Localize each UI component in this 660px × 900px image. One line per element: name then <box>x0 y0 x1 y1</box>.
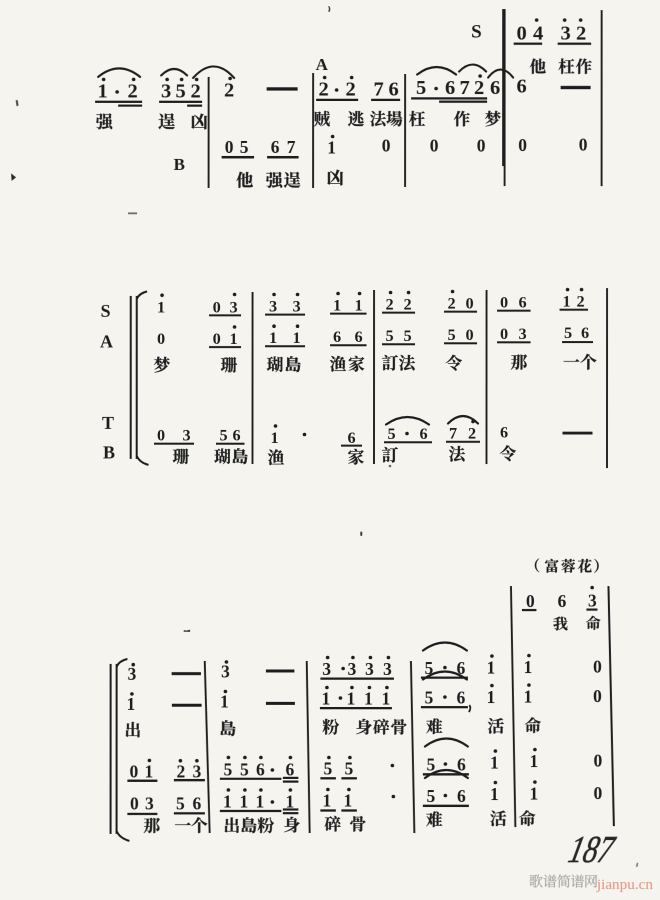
svg-text:1: 1 <box>229 330 237 348</box>
svg-text:0: 0 <box>382 136 391 156</box>
svg-text:3: 3 <box>365 659 374 679</box>
svg-text:A: A <box>100 331 113 351</box>
svg-text:6: 6 <box>519 294 527 312</box>
svg-text:0: 0 <box>594 751 603 771</box>
svg-text:3: 3 <box>128 664 137 684</box>
svg-text:5: 5 <box>564 324 572 342</box>
svg-text:5: 5 <box>385 327 393 345</box>
svg-text:5: 5 <box>175 80 185 102</box>
svg-text:6: 6 <box>445 77 455 99</box>
svg-text:2: 2 <box>448 295 456 313</box>
svg-text:5: 5 <box>176 793 185 813</box>
svg-text:2: 2 <box>318 78 328 100</box>
svg-text:5: 5 <box>425 688 434 708</box>
svg-text:1: 1 <box>490 784 499 804</box>
svg-text:1: 1 <box>382 689 391 709</box>
svg-text:2: 2 <box>468 425 476 443</box>
svg-text:6: 6 <box>581 324 589 342</box>
svg-text:6: 6 <box>192 793 201 813</box>
svg-text:5: 5 <box>240 759 249 779</box>
svg-text:2: 2 <box>345 79 355 101</box>
svg-text:5: 5 <box>240 137 249 157</box>
svg-text:2: 2 <box>177 761 186 781</box>
svg-text:6: 6 <box>490 77 500 99</box>
svg-text:0: 0 <box>213 298 221 316</box>
svg-text:0: 0 <box>500 294 508 312</box>
svg-text:5: 5 <box>416 77 426 99</box>
svg-text:1: 1 <box>347 689 356 709</box>
svg-text:7: 7 <box>449 425 457 443</box>
svg-text:6: 6 <box>271 137 280 157</box>
svg-text:1: 1 <box>269 329 277 347</box>
svg-text:0: 0 <box>593 686 602 706</box>
svg-text:1: 1 <box>322 790 331 810</box>
svg-text:7: 7 <box>459 77 469 99</box>
svg-text:3: 3 <box>182 426 190 444</box>
svg-text:2: 2 <box>127 80 137 102</box>
svg-text:3: 3 <box>588 591 597 611</box>
svg-text:A: A <box>316 55 329 74</box>
svg-text:1: 1 <box>355 297 363 315</box>
svg-text:2: 2 <box>224 79 234 101</box>
svg-text:T: T <box>102 413 114 433</box>
svg-text:2: 2 <box>404 296 412 314</box>
svg-text:3: 3 <box>145 793 154 813</box>
svg-text:1: 1 <box>145 761 154 781</box>
svg-text:3: 3 <box>383 659 392 679</box>
svg-text:B: B <box>103 442 115 462</box>
svg-text:B: B <box>174 155 185 174</box>
svg-text:1: 1 <box>333 297 341 315</box>
svg-text:6: 6 <box>419 425 427 443</box>
svg-text:0: 0 <box>500 325 508 343</box>
svg-text:5: 5 <box>427 786 436 806</box>
svg-text:1: 1 <box>127 694 136 714</box>
svg-text:4: 4 <box>533 23 543 45</box>
svg-text:6: 6 <box>558 591 567 611</box>
svg-text:0: 0 <box>518 135 527 155</box>
svg-text:1: 1 <box>524 687 533 707</box>
svg-text:0: 0 <box>465 326 473 344</box>
svg-text:2: 2 <box>474 77 484 99</box>
svg-text:0: 0 <box>130 761 139 781</box>
svg-text:1: 1 <box>270 429 278 447</box>
svg-text:6: 6 <box>500 424 508 442</box>
svg-text:7: 7 <box>373 79 383 101</box>
svg-text:6: 6 <box>286 759 295 779</box>
svg-text:3: 3 <box>561 23 571 45</box>
svg-text:5: 5 <box>224 759 233 779</box>
svg-text:1: 1 <box>157 298 165 316</box>
svg-text:0: 0 <box>477 135 486 155</box>
svg-text:1: 1 <box>487 687 496 707</box>
svg-text:6: 6 <box>232 426 240 444</box>
svg-text:5: 5 <box>219 426 227 444</box>
svg-text:6: 6 <box>388 79 398 101</box>
svg-text:S: S <box>101 301 111 321</box>
svg-text:5: 5 <box>387 425 395 443</box>
svg-text:1: 1 <box>327 137 336 157</box>
svg-text:1: 1 <box>364 689 373 709</box>
svg-text:3: 3 <box>348 659 357 679</box>
svg-text:1: 1 <box>524 657 533 677</box>
svg-text:1: 1 <box>255 791 264 811</box>
svg-text:S: S <box>471 22 482 43</box>
svg-text:5: 5 <box>447 326 455 344</box>
svg-text:3: 3 <box>322 659 331 679</box>
svg-text:2: 2 <box>577 293 585 311</box>
svg-text:0: 0 <box>593 657 602 677</box>
svg-text:2: 2 <box>576 23 586 45</box>
svg-text:6: 6 <box>347 429 355 447</box>
svg-text:1: 1 <box>530 784 539 804</box>
svg-text:2: 2 <box>190 80 200 102</box>
svg-text:6: 6 <box>457 786 466 806</box>
svg-text:6: 6 <box>333 328 341 346</box>
svg-text:1: 1 <box>292 329 300 347</box>
svg-text:3: 3 <box>193 761 202 781</box>
svg-text:5: 5 <box>403 327 411 345</box>
svg-text:0: 0 <box>594 783 603 803</box>
svg-text:0: 0 <box>526 591 535 611</box>
svg-text:0: 0 <box>130 793 139 813</box>
svg-text:6: 6 <box>457 688 466 708</box>
svg-text:0: 0 <box>213 330 221 348</box>
svg-text:7: 7 <box>287 137 296 157</box>
svg-text:6: 6 <box>516 76 526 98</box>
svg-text:1: 1 <box>239 791 248 811</box>
svg-text:1: 1 <box>530 751 539 771</box>
svg-text:3: 3 <box>269 297 277 315</box>
svg-text:1: 1 <box>322 688 331 708</box>
svg-text:5: 5 <box>345 759 354 779</box>
svg-text:1: 1 <box>97 80 107 102</box>
svg-text:5: 5 <box>324 758 333 778</box>
svg-text:6: 6 <box>354 328 362 346</box>
svg-text:0: 0 <box>517 23 527 45</box>
svg-text:0: 0 <box>466 295 474 313</box>
svg-text:1: 1 <box>487 658 496 678</box>
svg-text:1: 1 <box>343 791 352 811</box>
svg-text:3: 3 <box>161 80 171 102</box>
svg-text:0: 0 <box>430 135 439 155</box>
svg-text:3: 3 <box>293 297 301 315</box>
svg-text:3: 3 <box>518 325 526 343</box>
svg-text:jianpu.cn: jianpu.cn <box>596 876 654 893</box>
svg-text:1: 1 <box>223 791 232 811</box>
svg-text:2: 2 <box>386 296 394 314</box>
svg-text:6: 6 <box>256 759 265 779</box>
svg-text:3: 3 <box>221 661 230 681</box>
svg-text:1: 1 <box>490 753 499 773</box>
svg-text:0: 0 <box>157 426 165 444</box>
svg-text:0: 0 <box>157 330 165 348</box>
svg-text:0: 0 <box>225 137 234 157</box>
svg-text:1: 1 <box>563 293 571 311</box>
svg-text:1: 1 <box>220 691 229 711</box>
svg-text:3: 3 <box>229 298 237 316</box>
svg-text:0: 0 <box>579 135 588 155</box>
